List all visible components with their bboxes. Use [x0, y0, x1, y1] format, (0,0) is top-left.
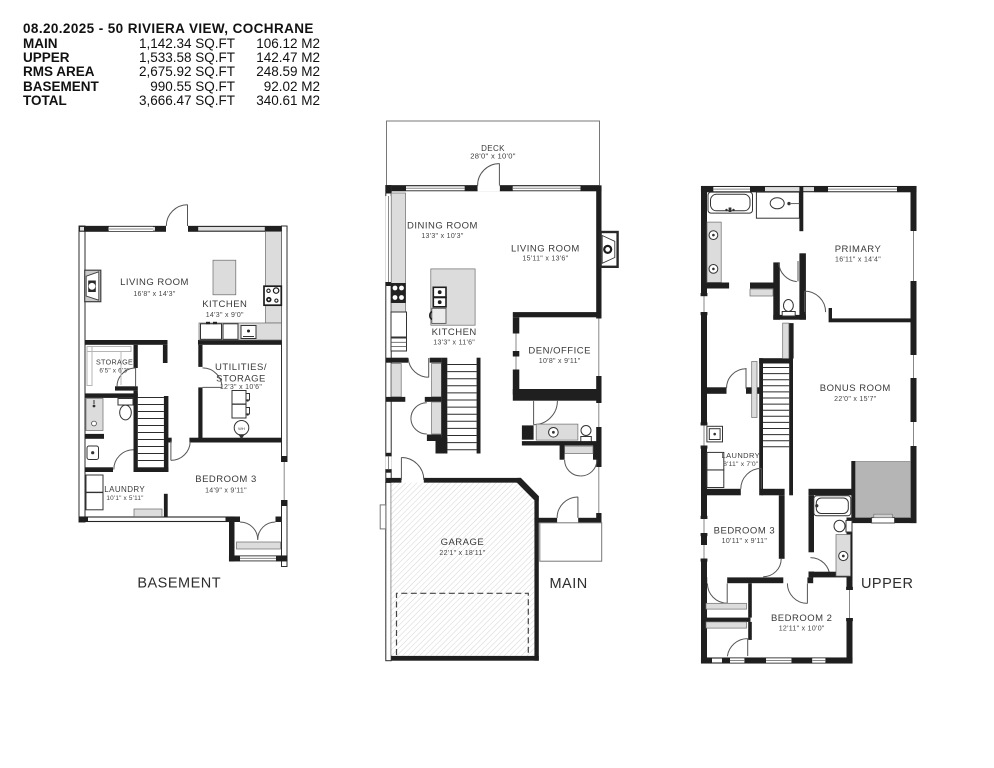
svg-text:13'3" x 11'6": 13'3" x 11'6" — [433, 340, 475, 347]
svg-text:15'11" x 13'6": 15'11" x 13'6" — [522, 256, 568, 263]
svg-text:22'0" x 15'7": 22'0" x 15'7" — [834, 396, 877, 403]
svg-text:16'11" x 14'4": 16'11" x 14'4" — [835, 257, 881, 264]
svg-text:BASEMENT: BASEMENT — [137, 576, 221, 592]
svg-text:14'9" x 9'11": 14'9" x 9'11" — [205, 488, 247, 495]
svg-text:DEN/OFFICE: DEN/OFFICE — [528, 346, 591, 357]
svg-text:12'11" x 10'0": 12'11" x 10'0" — [779, 626, 825, 633]
svg-text:BEDROOM 3: BEDROOM 3 — [714, 526, 776, 537]
svg-text:DINING ROOM: DINING ROOM — [407, 221, 478, 232]
svg-text:KITCHEN: KITCHEN — [202, 299, 247, 310]
svg-text:28'0" x 10'0": 28'0" x 10'0" — [470, 152, 516, 161]
svg-text:10'11" x 9'11": 10'11" x 9'11" — [722, 538, 768, 545]
svg-text:STORAGE: STORAGE — [216, 374, 266, 385]
svg-text:BEDROOM 3: BEDROOM 3 — [195, 474, 257, 485]
svg-text:LAUNDRY: LAUNDRY — [104, 485, 145, 494]
svg-text:PRIMARY: PRIMARY — [835, 244, 882, 255]
svg-text:13'3" x 10'3": 13'3" x 10'3" — [421, 233, 464, 240]
svg-text:6'5" x 6'3": 6'5" x 6'3" — [99, 368, 129, 375]
svg-text:LAUNDRY: LAUNDRY — [722, 451, 761, 460]
svg-text:10'8" x 9'11": 10'8" x 9'11" — [539, 358, 581, 365]
svg-text:BONUS ROOM: BONUS ROOM — [820, 383, 891, 394]
svg-text:UTILITIES/: UTILITIES/ — [215, 362, 267, 373]
svg-text:GARAGE: GARAGE — [441, 537, 485, 548]
svg-text:16'8" x 14'3": 16'8" x 14'3" — [133, 291, 176, 298]
svg-text:22'1" x 18'11": 22'1" x 18'11" — [439, 550, 485, 557]
svg-text:MAIN: MAIN — [549, 576, 587, 592]
svg-text:8'11" x 7'0": 8'11" x 7'0" — [723, 461, 759, 468]
svg-text:LIVING ROOM: LIVING ROOM — [511, 244, 580, 255]
svg-text:12'3" x 10'6": 12'3" x 10'6" — [220, 384, 263, 391]
svg-text:WH: WH — [238, 426, 245, 431]
svg-text:BEDROOM 2: BEDROOM 2 — [771, 613, 833, 624]
svg-text:14'3" x 9'0": 14'3" x 9'0" — [206, 312, 244, 319]
svg-text:UPPER: UPPER — [861, 576, 913, 592]
svg-text:LIVING ROOM: LIVING ROOM — [120, 277, 189, 288]
svg-text:10'1" x 5'11": 10'1" x 5'11" — [106, 495, 143, 502]
svg-text:STORAGE: STORAGE — [96, 358, 133, 367]
svg-text:KITCHEN: KITCHEN — [432, 327, 477, 338]
